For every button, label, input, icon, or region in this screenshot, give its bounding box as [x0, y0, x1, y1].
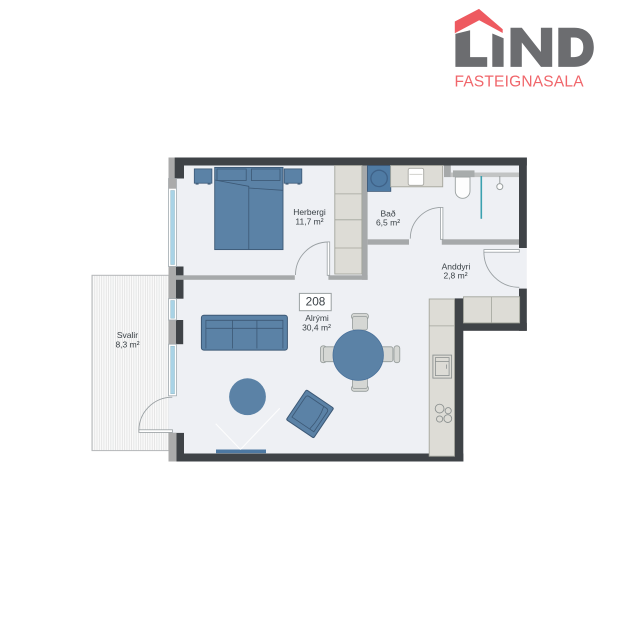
svg-text:208: 208: [306, 295, 326, 309]
svg-text:8,3 m²: 8,3 m²: [115, 339, 139, 349]
svg-text:2,8 m²: 2,8 m²: [443, 271, 467, 281]
svg-text:11,7 m²: 11,7 m²: [295, 216, 323, 226]
svg-text:FASTEIGNASALA: FASTEIGNASALA: [455, 74, 585, 91]
svg-text:30,4 m²: 30,4 m²: [302, 322, 331, 332]
svg-text:6,5 m²: 6,5 m²: [376, 218, 400, 228]
